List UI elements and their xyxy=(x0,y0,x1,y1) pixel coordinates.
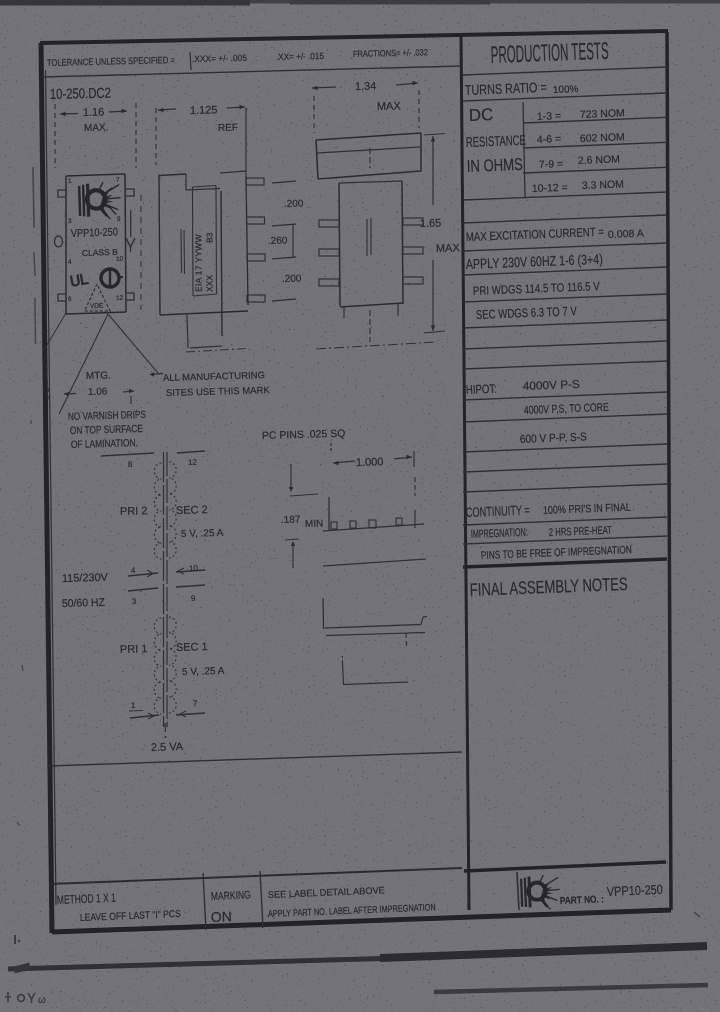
svg-text:ω: ω xyxy=(38,995,46,1006)
